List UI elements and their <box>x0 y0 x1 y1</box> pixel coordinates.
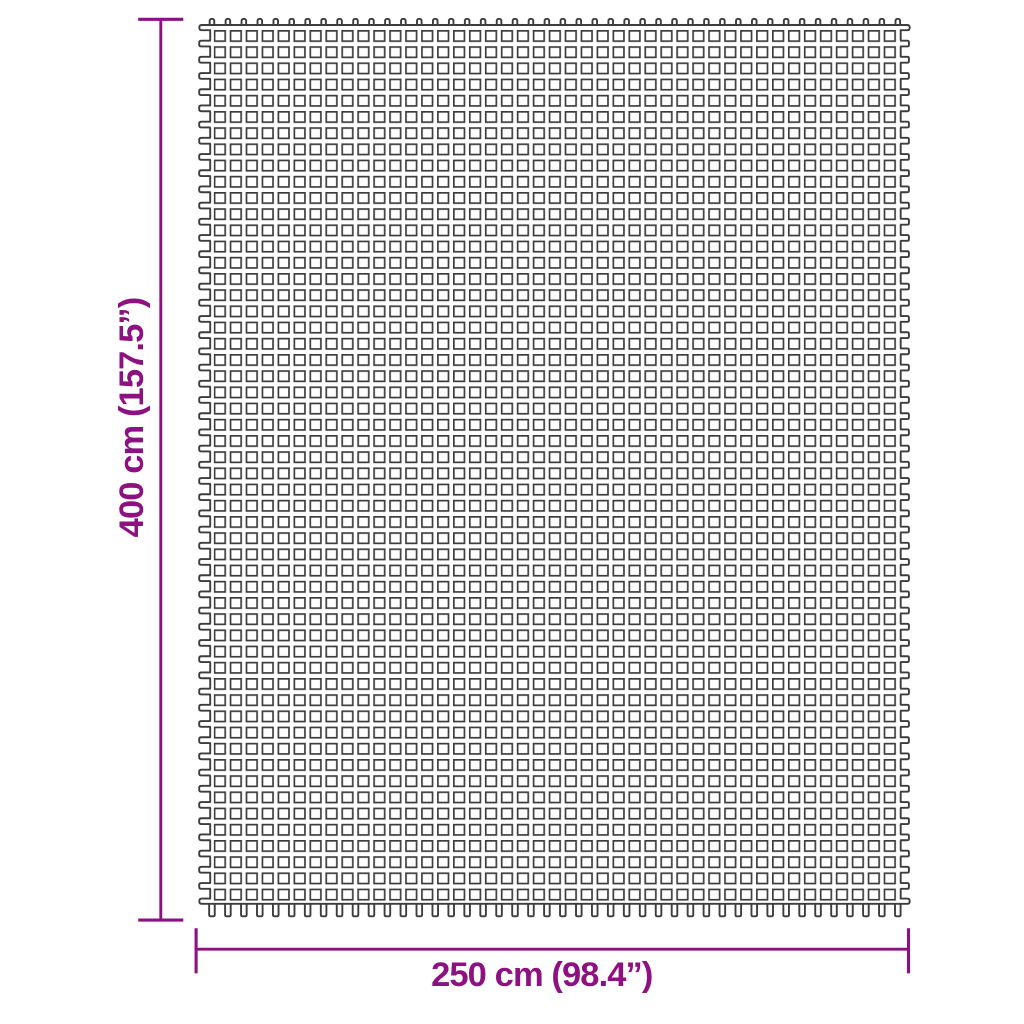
svg-text:400 cm (157.5”): 400 cm (157.5”) <box>113 298 151 538</box>
svg-text:250 cm (98.4”): 250 cm (98.4”) <box>431 956 652 994</box>
